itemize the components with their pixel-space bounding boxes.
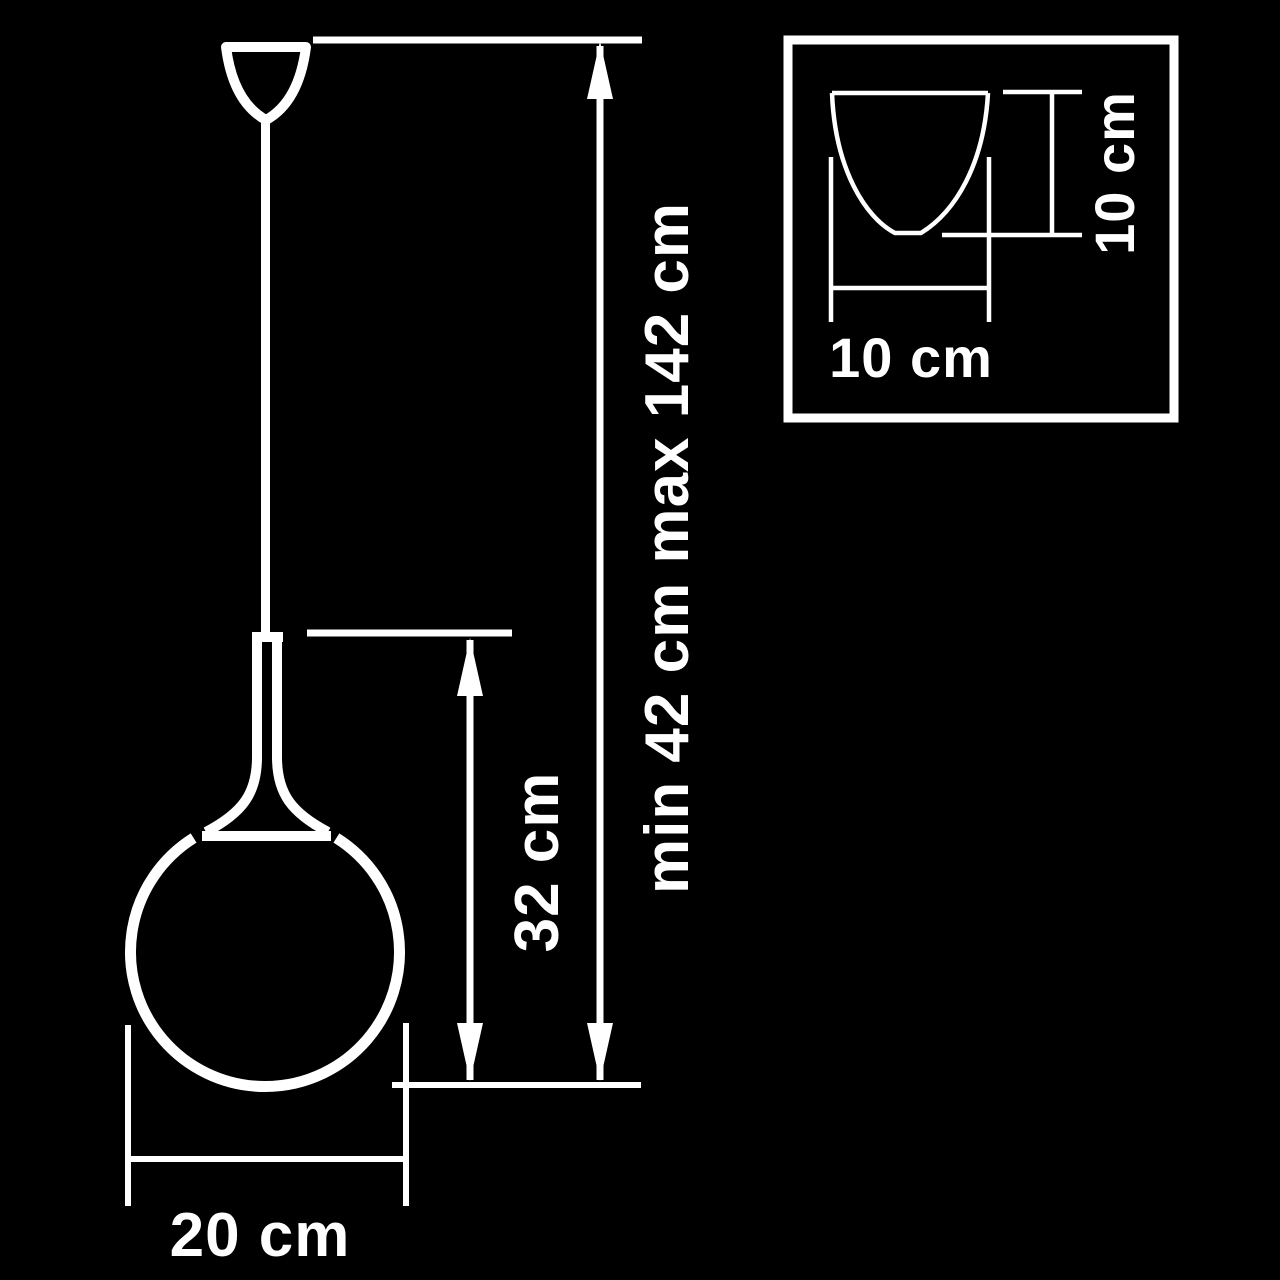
shade-height-label: 32 cm [507,772,569,953]
dimension-diagram: min 42 cm max 142 cm 32 cm 20 cm 10 cm 1… [0,0,1280,1280]
overall-height-arrow-down-icon [587,1023,613,1081]
overall-height-label: min 42 cm max 142 cm [637,202,699,894]
overall-height-arrow-up-icon [587,41,613,99]
shade-height-arrow-up-icon [457,638,483,696]
shade-height-arrow-down-icon [457,1023,483,1081]
pendant-lamp-drawing [131,47,400,1086]
globe-shade [131,838,400,1086]
inset-shade-profile [832,93,988,233]
dimension-lines [128,40,642,1206]
shade-diameter-label: 20 cm [170,1205,351,1267]
inset-width-label: 10 cm [829,330,993,386]
ceiling-canopy-icon [226,47,306,120]
inset-height-label: 10 cm [1087,91,1143,255]
shade-neck-outline [206,637,328,832]
